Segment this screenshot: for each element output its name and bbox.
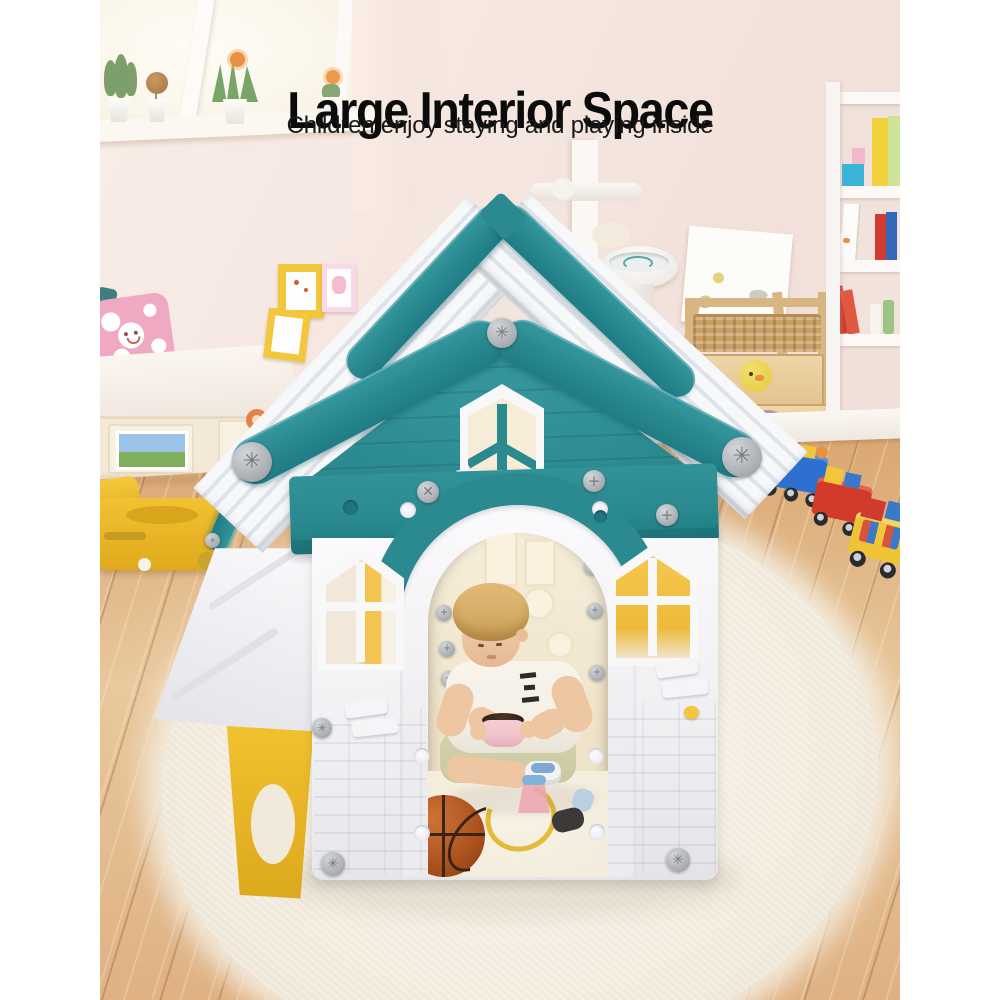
screw-icon: + <box>589 665 605 681</box>
window-mullion <box>356 562 365 662</box>
lantern-toy-cap <box>522 775 546 785</box>
plug-icon <box>400 502 416 518</box>
child-hand <box>470 723 487 740</box>
wall-rail <box>530 183 642 201</box>
screw-icon: ✳ <box>321 852 345 876</box>
screw-icon: ✳ <box>232 442 272 482</box>
interior-window-cutout <box>484 533 518 587</box>
window-mullion <box>616 596 690 605</box>
playroom-photo: ✳ <box>100 0 900 1000</box>
interior-window-cutout <box>524 539 556 587</box>
plug-icon <box>589 824 605 840</box>
screw-icon: ✳ <box>312 718 332 738</box>
bottle <box>870 304 881 334</box>
yellow-knob <box>684 706 699 719</box>
screw-icon: ✕ <box>417 481 439 503</box>
bench-drawer <box>108 424 194 474</box>
blue-book <box>886 212 897 260</box>
page-subtitle: Children enjoy staying and playing insid… <box>0 112 1000 141</box>
screw-icon: + <box>587 603 603 619</box>
plug-icon <box>414 825 430 841</box>
cream-plush <box>592 222 630 248</box>
green-bottle <box>883 300 894 334</box>
yellow-picture-frame <box>263 308 311 363</box>
pillow-smiley <box>116 321 145 350</box>
child-ear <box>516 629 528 642</box>
rack-rail <box>685 298 827 307</box>
wicker-basket <box>693 314 821 352</box>
window-mullion <box>648 558 657 656</box>
plug-icon <box>414 748 430 764</box>
screw-icon: ✳ <box>205 533 220 548</box>
pink-picture-frame <box>322 264 356 312</box>
yellow-duck-ball <box>740 360 772 392</box>
shelf-board <box>840 260 900 272</box>
plug-icon <box>594 510 607 523</box>
window-mullion <box>326 602 396 611</box>
screw-icon: + <box>584 559 600 575</box>
screw-icon: ✳ <box>487 318 517 348</box>
screw-icon: + <box>583 470 605 492</box>
rail-joint <box>552 178 574 200</box>
brick-texture-right <box>608 702 716 874</box>
marketing-image: ✳ <box>0 0 1000 1000</box>
red-book <box>875 214 886 260</box>
screw-icon: ✳ <box>666 848 690 872</box>
blue-box <box>842 164 864 186</box>
doorway: + + + + + + <box>428 533 608 877</box>
shelf-board <box>840 186 900 198</box>
orange-flower <box>230 52 245 67</box>
pink-bowl <box>480 720 526 747</box>
plug-icon <box>588 748 604 764</box>
pink-gift <box>852 148 865 164</box>
shelf-board <box>840 334 900 346</box>
interior-porthole <box>546 631 574 659</box>
landscape-sticker <box>116 431 188 470</box>
child-hand <box>520 721 537 738</box>
screw-icon: ✳ <box>722 437 762 477</box>
basin-interior <box>609 252 669 272</box>
screw-icon: + <box>656 504 678 526</box>
screw-icon: + <box>436 605 452 621</box>
plug-icon <box>343 500 358 515</box>
screw-icon: + <box>439 641 455 657</box>
